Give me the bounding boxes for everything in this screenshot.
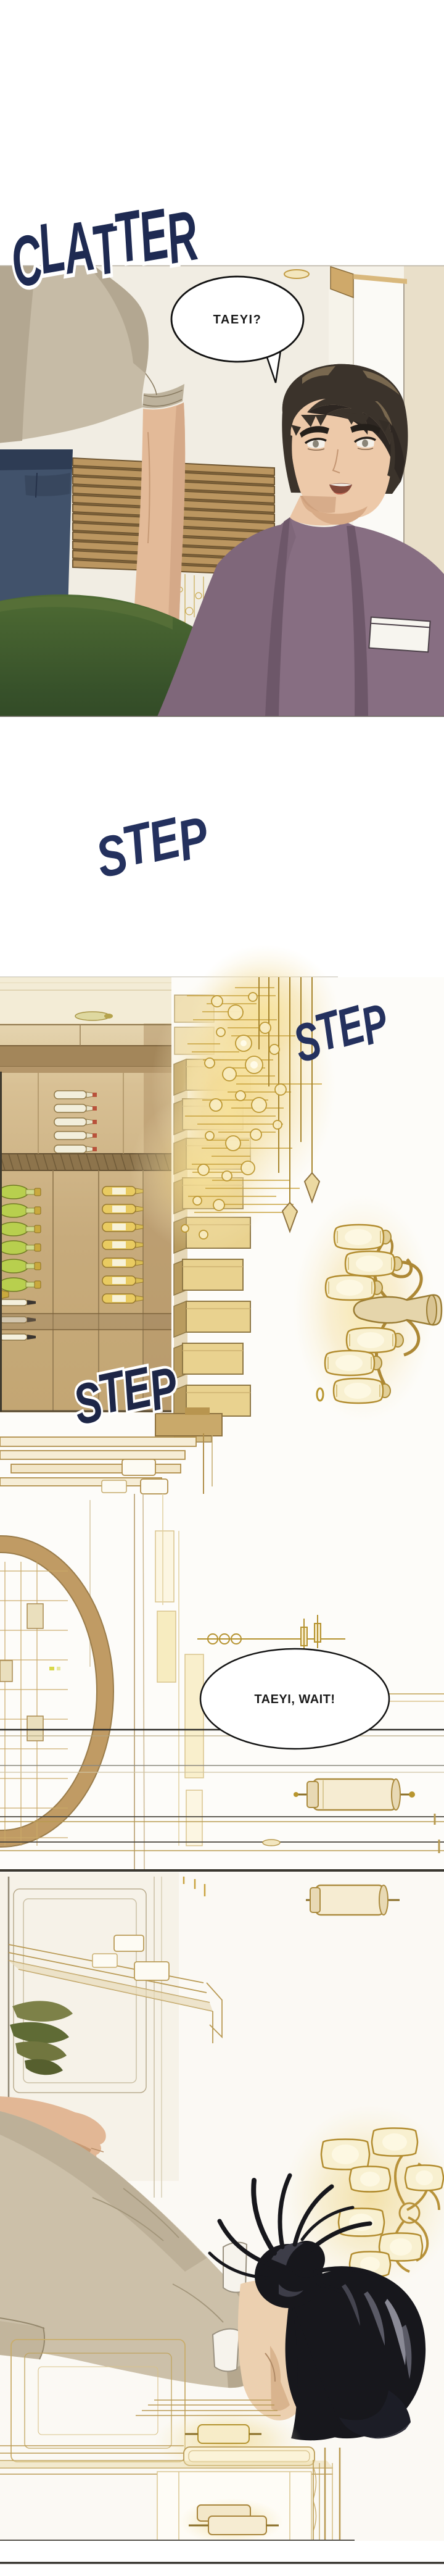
svg-text:TAEYI, WAIT!: TAEYI, WAIT! [254,1693,335,1706]
svg-text:TAEYI?: TAEYI? [213,313,262,327]
svg-text:STEP: STEP [89,798,215,892]
